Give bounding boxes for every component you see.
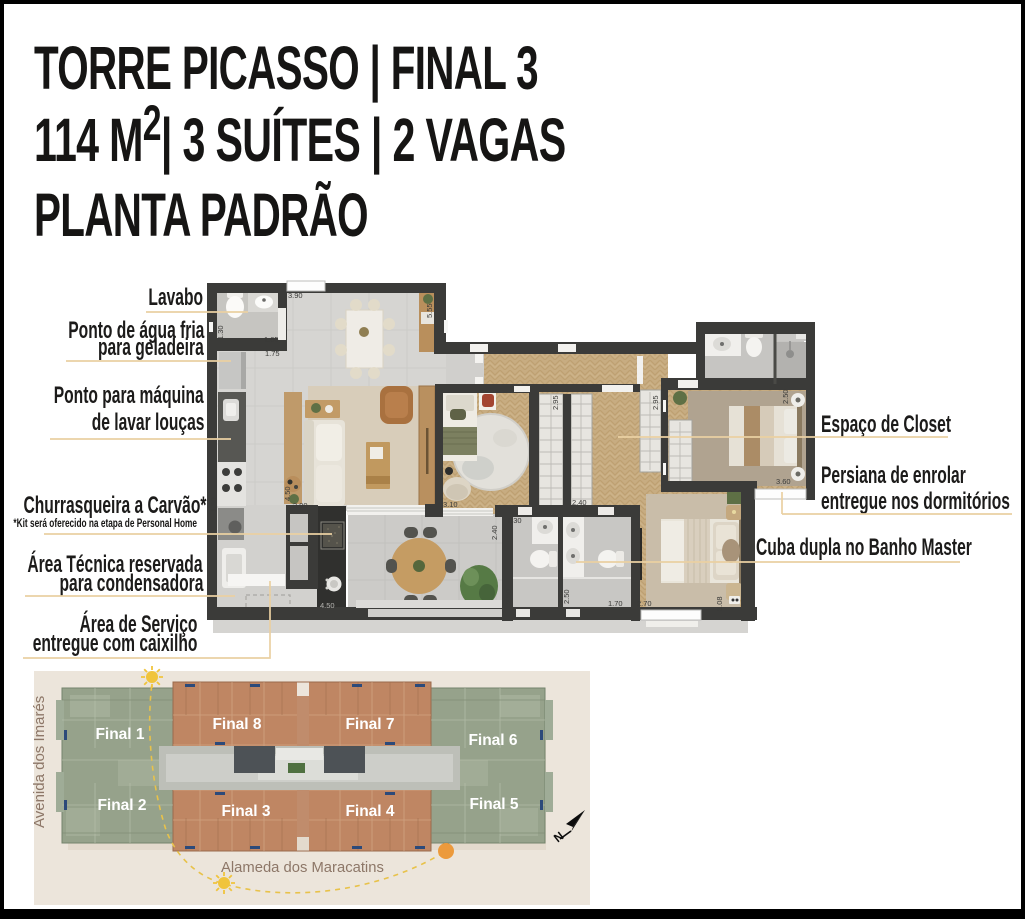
svg-text:Final 2: Final 2 (97, 797, 146, 814)
svg-text:Final 3: Final 3 (221, 803, 270, 820)
svg-text:Final 8: Final 8 (212, 716, 261, 733)
svg-text:Final 7: Final 7 (345, 716, 394, 733)
svg-text:Final 5: Final 5 (469, 796, 518, 813)
svg-text:Final 4: Final 4 (345, 803, 394, 820)
svg-text:Alameda dos Maracatins: Alameda dos Maracatins (221, 860, 384, 876)
svg-text:Final 1: Final 1 (95, 726, 144, 743)
svg-text:Avenida dos Imarés: Avenida dos Imarés (31, 696, 48, 828)
svg-text:Final 6: Final 6 (468, 732, 517, 749)
